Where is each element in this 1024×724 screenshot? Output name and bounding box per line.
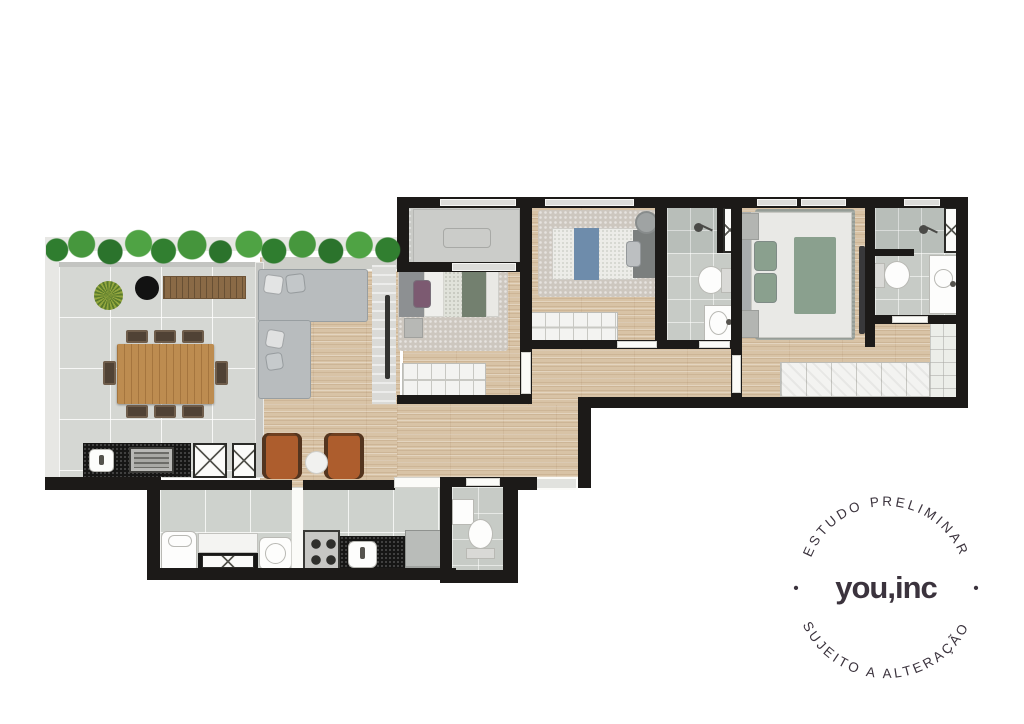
wall-corridor-bottom xyxy=(578,397,968,408)
watermark-arc-bottom: SUJEITO A ALTERAÇÃO xyxy=(800,619,973,681)
terrace-cabinet-x xyxy=(232,443,256,478)
dining-table xyxy=(117,344,214,404)
floor-plan-canvas: ESTUDO PRELIMINAR SUJEITO A ALTERAÇÃO • … xyxy=(0,0,1024,724)
corridor-floor xyxy=(528,343,742,405)
washer-lid xyxy=(168,535,192,547)
masterbath-window xyxy=(904,199,940,206)
hedge-plants xyxy=(46,229,402,267)
stove xyxy=(303,530,340,571)
powder-room-cabinet xyxy=(452,499,474,525)
balcony-bench-cushion xyxy=(443,228,491,248)
laundry-counter xyxy=(198,533,258,553)
tv-living xyxy=(385,295,390,379)
bathroom1-basin xyxy=(709,311,728,335)
armchair xyxy=(324,433,364,479)
dining-chair xyxy=(126,330,148,343)
tank-basin xyxy=(265,543,286,564)
bedroom2-door xyxy=(617,341,657,348)
watermark-separator-right: • xyxy=(973,580,978,597)
dining-chair xyxy=(182,330,204,343)
master-toilet-bowl xyxy=(884,261,910,289)
wall-kitchen-bottom xyxy=(147,568,456,580)
bedroom2-pillow xyxy=(626,241,641,267)
wall-terrace-bottom xyxy=(45,477,161,490)
masterbath-door xyxy=(892,316,928,323)
master-shower-halfwall xyxy=(872,249,914,256)
dining-chair xyxy=(154,330,176,343)
faucet-icon xyxy=(360,547,365,559)
wall-kitchen-top-a xyxy=(160,480,292,490)
watermark-arc-top: ESTUDO PRELIMINAR xyxy=(800,494,972,559)
dining-chair xyxy=(154,405,176,418)
master-pillow xyxy=(754,241,777,271)
watermark-brand: you,inc xyxy=(835,570,937,605)
sofa-pillow xyxy=(265,329,286,350)
master-door xyxy=(732,355,741,393)
sofa-pillow xyxy=(285,273,306,294)
wall-kitchen-top-b xyxy=(303,480,395,490)
fire-pit xyxy=(135,276,159,300)
wall-powder-left xyxy=(440,477,452,583)
bedroom2-window xyxy=(545,199,634,206)
master-bed-throw xyxy=(794,237,836,314)
dining-chair xyxy=(182,405,204,418)
sofa-pillow xyxy=(263,274,284,295)
bedroom1-nightstand xyxy=(404,318,423,338)
wall-powder-right xyxy=(503,477,518,583)
wall-master-masterbath xyxy=(865,207,875,347)
terrace-parapet-left xyxy=(45,237,59,490)
powder-room-toilet-bowl xyxy=(468,519,493,549)
master-pillow xyxy=(754,273,777,303)
wall-corridor-vert xyxy=(578,397,591,488)
powder-room-toilet-tank xyxy=(466,548,495,559)
faucet-icon xyxy=(99,455,104,465)
wall-shower1-divider xyxy=(717,207,723,253)
balcony-door-window xyxy=(452,263,516,271)
bathroom1-door xyxy=(699,341,730,348)
sofa-pillow xyxy=(265,352,284,371)
bedroom2-bed-blanket xyxy=(574,228,599,280)
powder-room-door xyxy=(466,478,500,486)
wall-powder-bottom xyxy=(440,570,518,583)
kitchen-door xyxy=(394,477,445,488)
entry-door xyxy=(532,477,578,490)
dining-chair xyxy=(103,361,116,385)
armchair xyxy=(262,433,302,479)
sideboard xyxy=(163,276,246,299)
hall-floor xyxy=(397,399,582,479)
dining-chair xyxy=(126,405,148,418)
bedroom1-pillow xyxy=(413,280,431,308)
bedroom1-dresser xyxy=(402,363,486,397)
dining-chair xyxy=(215,361,228,385)
bedroom1-bed-blanket xyxy=(462,271,486,317)
master-wardrobe xyxy=(780,362,930,397)
closet-tile-floor xyxy=(930,323,957,398)
terrace-cabinet-x xyxy=(193,443,227,478)
master-window xyxy=(757,199,797,206)
bedroom1-door xyxy=(521,352,531,394)
bedroom2-dresser xyxy=(530,312,618,343)
wall-bath1-master xyxy=(731,197,742,349)
wall-right xyxy=(956,197,968,407)
bedroom1-bed-foot xyxy=(486,271,499,317)
side-table xyxy=(305,451,328,474)
laundry-cabinet-x xyxy=(202,555,254,568)
tv-panel-wall xyxy=(372,265,396,404)
potted-plant xyxy=(94,281,123,310)
wall-bedroom2-bath1 xyxy=(655,197,667,349)
wall-entry-segment xyxy=(515,477,537,490)
grill-grate xyxy=(134,452,169,468)
master-window xyxy=(801,199,846,206)
bedroom1-bed-quilt xyxy=(444,271,462,317)
watermark-separator-left: • xyxy=(793,580,798,597)
wall-bedroom1-bottom xyxy=(397,395,532,404)
wall-laundry-left xyxy=(147,484,160,580)
balcony-window xyxy=(440,199,516,206)
watermark-badge: ESTUDO PRELIMINAR SUJEITO A ALTERAÇÃO • … xyxy=(781,481,991,691)
